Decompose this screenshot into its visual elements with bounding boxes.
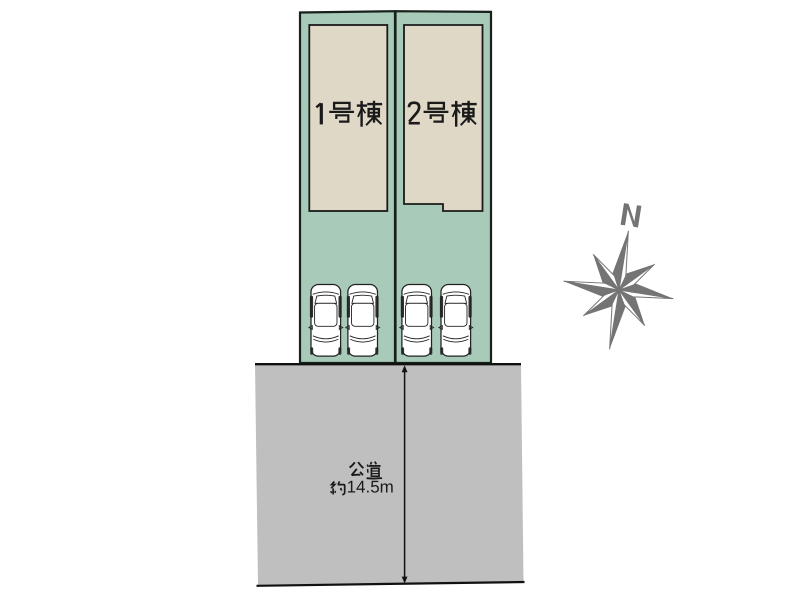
svg-text:14.5m: 14.5m [347,478,394,497]
